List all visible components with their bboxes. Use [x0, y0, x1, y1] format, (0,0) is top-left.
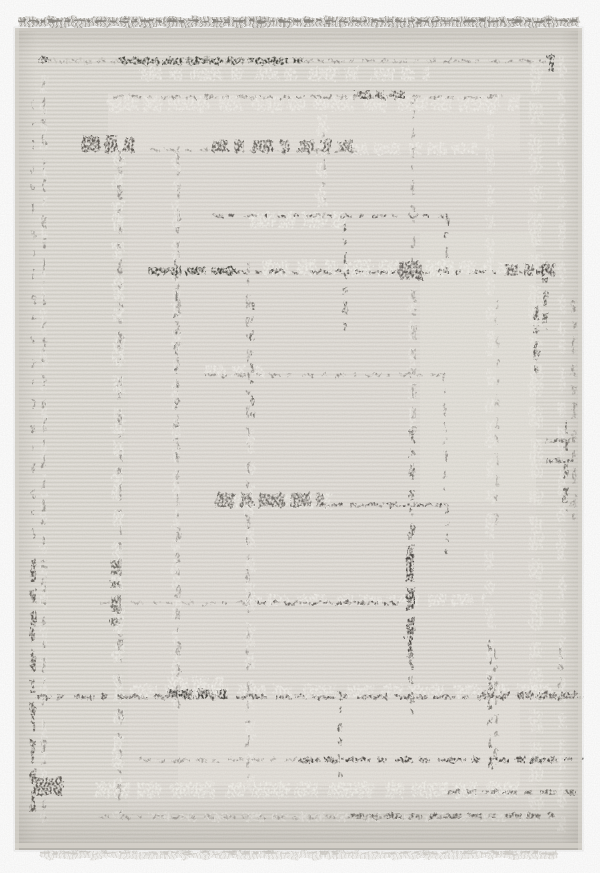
fringe-top [18, 17, 580, 27]
fabric-grain [15, 28, 582, 850]
rug-product-image [0, 0, 600, 873]
fringe-bottom [40, 851, 558, 859]
product-photo-page [0, 0, 600, 873]
rug-image-canvas [0, 0, 600, 873]
rug-edge-left [15, 28, 19, 850]
shading-top [15, 28, 582, 54]
rug-edge-top [15, 28, 582, 31]
rug-edge-right [578, 28, 582, 850]
rug-photo [0, 0, 600, 873]
rug-surface [14, 27, 584, 851]
shading-bottom [15, 790, 582, 850]
